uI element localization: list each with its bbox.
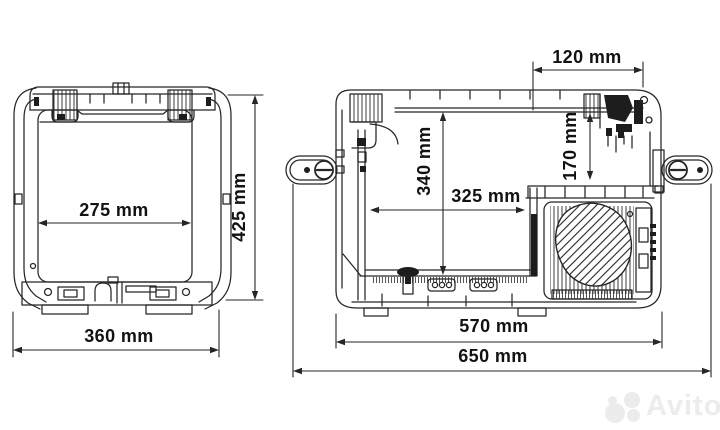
dimension-label-body-depth: 570 mm <box>459 317 528 335</box>
front-body-face <box>31 110 193 282</box>
avito-watermark: Avito <box>600 388 720 428</box>
avito-logo-dot <box>624 392 640 408</box>
front-base <box>22 277 212 314</box>
avito-logo-dot <box>605 403 625 423</box>
side-rear-hinge <box>584 94 652 152</box>
front-handle-bar <box>30 83 215 122</box>
diagram-stage: 275 mm 425 mm 360 mm 120 mm 340 mm 170 m… <box>0 0 720 430</box>
avito-watermark-text: Avito <box>646 389 720 424</box>
dimension-label-rear-section-height: 170 mm <box>561 111 579 180</box>
dimension-label-inner-width: 275 mm <box>79 201 148 219</box>
avito-logo-icon <box>600 388 644 428</box>
dimension-label-overall-width: 360 mm <box>84 327 153 345</box>
dimension-label-overall-depth: 650 mm <box>458 347 527 365</box>
side-lid <box>370 91 643 144</box>
latch-front <box>286 156 337 184</box>
avito-logo-dot <box>627 409 640 422</box>
front-view-drawing <box>14 83 231 314</box>
dimension-label-interior-height: 340 mm <box>415 126 433 195</box>
dim-275-graphic <box>38 220 191 226</box>
dimension-label-interior-depth: 325 mm <box>451 187 520 205</box>
front-handle-legs <box>14 88 231 309</box>
dim-325-graphic <box>370 207 525 213</box>
dimension-label-overall-height: 425 mm <box>230 172 248 241</box>
compressor-compartment <box>544 202 656 299</box>
latch-rear <box>653 150 712 193</box>
side-front-hinge <box>350 94 382 172</box>
dim-340-graphic <box>440 112 446 275</box>
dimension-label-top-rear-offset: 120 mm <box>552 48 621 66</box>
dim-170-graphic <box>587 113 593 180</box>
